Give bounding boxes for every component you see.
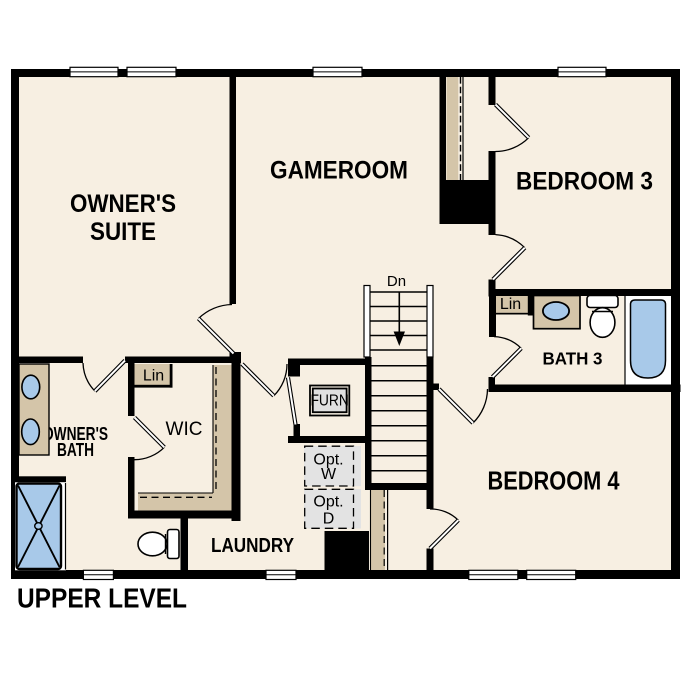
- svg-text:BEDROOM 4: BEDROOM 4: [488, 465, 620, 495]
- svg-text:GAMEROOM: GAMEROOM: [270, 157, 408, 185]
- svg-text:Dn: Dn: [387, 273, 406, 290]
- svg-text:LAUNDRY: LAUNDRY: [211, 534, 294, 557]
- svg-text:Lin: Lin: [143, 368, 164, 385]
- svg-text:FURN: FURN: [310, 392, 349, 409]
- svg-text:SUITE: SUITE: [90, 218, 156, 246]
- svg-text:UPPER LEVEL: UPPER LEVEL: [17, 582, 187, 613]
- svg-text:D: D: [323, 511, 335, 528]
- svg-text:BEDROOM 3: BEDROOM 3: [516, 168, 653, 196]
- svg-text:BATH 3: BATH 3: [543, 349, 603, 369]
- svg-text:BATH: BATH: [57, 440, 94, 460]
- svg-text:Opt.: Opt.: [313, 494, 343, 511]
- svg-text:W: W: [321, 466, 337, 483]
- svg-text:WIC: WIC: [166, 419, 203, 440]
- svg-text:OWNER'S: OWNER'S: [70, 190, 176, 218]
- svg-text:Lin: Lin: [500, 296, 521, 313]
